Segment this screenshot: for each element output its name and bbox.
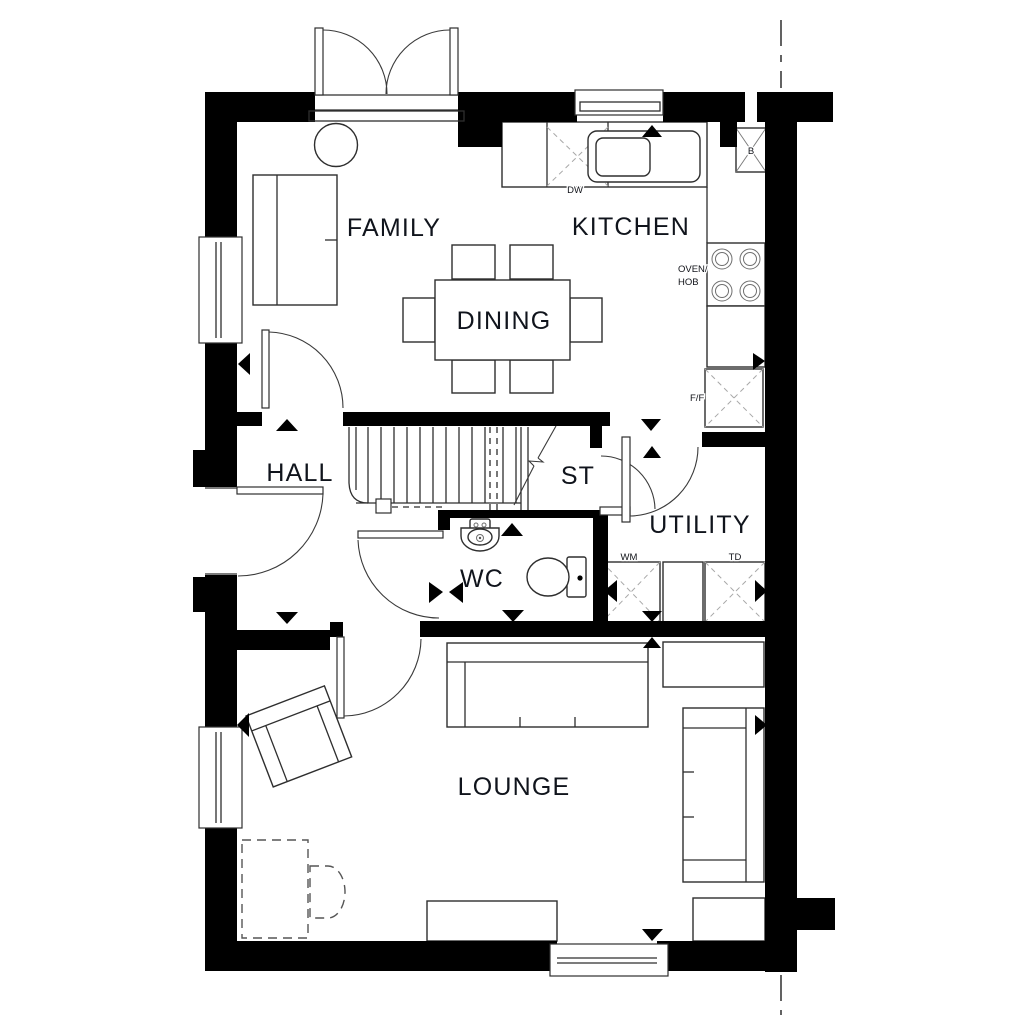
fridge-freezer-unit	[705, 369, 763, 427]
lounge-window-left	[199, 727, 242, 828]
room-label-lounge: LOUNGE	[458, 773, 571, 801]
newel-post	[376, 499, 391, 513]
lounge-sofa-top	[447, 643, 648, 727]
appliance-label-dishwasher: DW	[567, 185, 583, 196]
lounge-armchair	[246, 686, 352, 787]
dining-chair	[510, 360, 553, 393]
dining-chair	[570, 298, 602, 342]
front-door	[205, 487, 323, 576]
room-label-dining: DINING	[457, 307, 552, 335]
floor-plan-page: FAMILY KITCHEN DINING HALL ST UTILITY WC…	[0, 0, 1024, 1024]
stair-landing-line	[490, 427, 497, 511]
appliance-label-oven: OVEN/	[678, 264, 708, 275]
room-label-kitchen: KITCHEN	[572, 213, 690, 241]
family-sofa	[253, 175, 337, 305]
console-table	[663, 642, 764, 687]
room-label-store: ST	[561, 462, 595, 490]
dining-chair	[510, 245, 553, 279]
kitchen-window	[575, 90, 663, 115]
appliance-label-hob: HOB	[678, 277, 699, 288]
side-table	[315, 124, 358, 167]
lounge-sofa-right	[683, 708, 764, 882]
stair-direction-arrow	[514, 426, 556, 505]
oven-hob-unit	[707, 243, 765, 367]
staircase	[349, 426, 556, 513]
room-label-utility: UTILITY	[649, 511, 750, 539]
french-doors	[309, 28, 464, 121]
utility-worktop	[663, 562, 703, 622]
optional-table-dashed	[242, 840, 345, 938]
lounge-window-bottom	[550, 944, 668, 976]
appliance-label-fridge-freezer: F/F	[690, 393, 704, 404]
appliance-label-tumble-dryer: TD	[729, 552, 742, 563]
tv-unit	[427, 901, 557, 941]
wc-basin	[461, 519, 499, 551]
kitchen-sink	[588, 131, 700, 182]
dining-chair	[403, 298, 435, 342]
lounge-side-unit	[693, 898, 765, 941]
stair-treads	[368, 427, 516, 503]
floor-plan-canvas: FAMILY KITCHEN DINING HALL ST UTILITY WC…	[0, 0, 1024, 1024]
wc-toilet	[527, 557, 586, 597]
room-label-family: FAMILY	[347, 214, 441, 242]
family-door	[262, 330, 343, 408]
dining-chair	[452, 360, 495, 393]
family-window	[199, 237, 242, 343]
utility-door	[622, 437, 698, 522]
room-label-wc: WC	[460, 565, 504, 593]
dining-chair	[452, 245, 495, 279]
wc-door	[358, 531, 443, 618]
appliance-label-washing-machine: WM	[621, 552, 638, 563]
appliance-label-boiler: B	[748, 146, 754, 157]
lounge-door	[337, 637, 421, 718]
room-label-hall: HALL	[266, 459, 333, 487]
